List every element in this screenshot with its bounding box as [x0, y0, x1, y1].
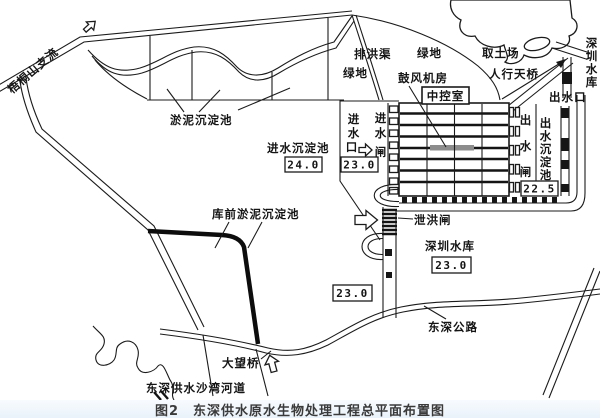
elevation-spill-channel: 23.0 [336, 287, 369, 300]
elevation-intake: 23.0 [343, 159, 376, 172]
inlet-gate-char: 闸 [375, 145, 388, 159]
treatment-basins [388, 103, 520, 196]
outlet-pond-char: 沉 [540, 142, 553, 156]
river-label: 东深供水沙湾河道 [146, 381, 246, 395]
elevation-inlet-pond: 24.0 [287, 159, 320, 172]
control-room-label: 中控室 [427, 89, 465, 103]
site-plan-drawing: 中控室 24.0 23.0 22.5 23.0 23.0 梧桐山支流 淤泥沉淀池… [0, 0, 600, 400]
elevation-box-outlet-pond: 22.5 [521, 181, 558, 196]
reservoir-ne-char: 水 [586, 62, 599, 76]
reservoir-ne-vertical-label: 深 圳 水 库 [586, 36, 599, 89]
elevation-box-spill-channel: 23.0 [333, 285, 372, 301]
outlet-pond-char: 水 [540, 129, 553, 143]
inlet-gate-vertical-label: 进 水 闸 [375, 111, 388, 159]
inlet-gate-char: 进 [375, 111, 388, 125]
green-area-west-label: 绿地 [343, 66, 368, 80]
elevation-outlet-pond: 22.5 [523, 183, 556, 196]
reservoir-ne-char: 库 [586, 75, 599, 89]
tributary-label: 梧桐山支流 [5, 45, 61, 97]
blower-house-label: 鼓风机房 [398, 71, 448, 85]
borrow-area-label: 取土场 [482, 46, 520, 60]
outlet-port-label: 出水口 [549, 90, 587, 104]
elevation-box-reservoir: 23.0 [432, 257, 471, 273]
outlet-gate-char: 水 [520, 139, 533, 153]
reservoir-ne-char: 圳 [586, 49, 599, 63]
dongshen-highway [160, 289, 600, 355]
outlet-gate-vertical-label: 出 水 闸 [520, 113, 533, 179]
spillway-flow-arrow [355, 211, 378, 230]
elevation-box-intake: 23.0 [341, 157, 378, 172]
elevation-box-inlet-pond: 24.0 [285, 157, 322, 172]
inlet-gate-char: 水 [375, 126, 388, 140]
silt-pond-label: 淤泥沉淀池 [170, 113, 233, 127]
control-room-box: 中控室 [422, 87, 469, 104]
intake-char: 口 [346, 140, 359, 154]
green-area-east-label: 绿地 [417, 46, 442, 60]
bridge-label: 大望桥 [222, 356, 260, 370]
spillway-gate-label: 泄洪闸 [414, 213, 452, 227]
reservoir-ne-char: 深 [586, 36, 599, 50]
intake-char: 水 [348, 126, 361, 140]
figure-caption: 图2 东深供水原水生物处理工程总平面布置图 [155, 400, 445, 418]
outlet-gate-char: 出 [520, 113, 533, 127]
inlet-pond-label: 进水沉淀池 [267, 141, 330, 155]
site-plan-figure: 中控室 24.0 23.0 22.5 23.0 23.0 梧桐山支流 淤泥沉淀池… [0, 0, 600, 418]
outlet-pond-vertical-label: 出 水 沉 淀 池 [540, 116, 553, 182]
footbridge-label: 人行天桥 [489, 67, 539, 81]
outlet-pond-char: 淀 [540, 155, 553, 169]
intake-vertical-label: 进 水 口 [346, 112, 361, 154]
outlet-pond-char: 池 [540, 168, 553, 182]
outlet-pond-char: 出 [540, 116, 553, 130]
pre-reservoir-pond-label: 库前淤泥沉淀池 [212, 207, 300, 221]
intake-char: 进 [348, 112, 361, 126]
figure-caption-bar: 图2 东深供水原水生物处理工程总平面布置图 [0, 400, 600, 418]
outlet-gate-char: 闸 [520, 165, 533, 179]
intake-flow-arrow [359, 144, 372, 156]
southeast-road [543, 268, 600, 398]
pools-outfall-channel [402, 197, 557, 203]
flood-drain-label: 排洪渠 [354, 47, 392, 61]
inlet-gates [390, 106, 399, 194]
outlet-gates [510, 108, 520, 193]
tributary-flow-arrow [81, 17, 99, 35]
bridge-north-arrow [263, 353, 281, 373]
reservoir-label: 深圳水库 [425, 239, 475, 253]
highway-label: 东深公路 [428, 320, 478, 334]
elevation-reservoir: 23.0 [435, 259, 468, 272]
